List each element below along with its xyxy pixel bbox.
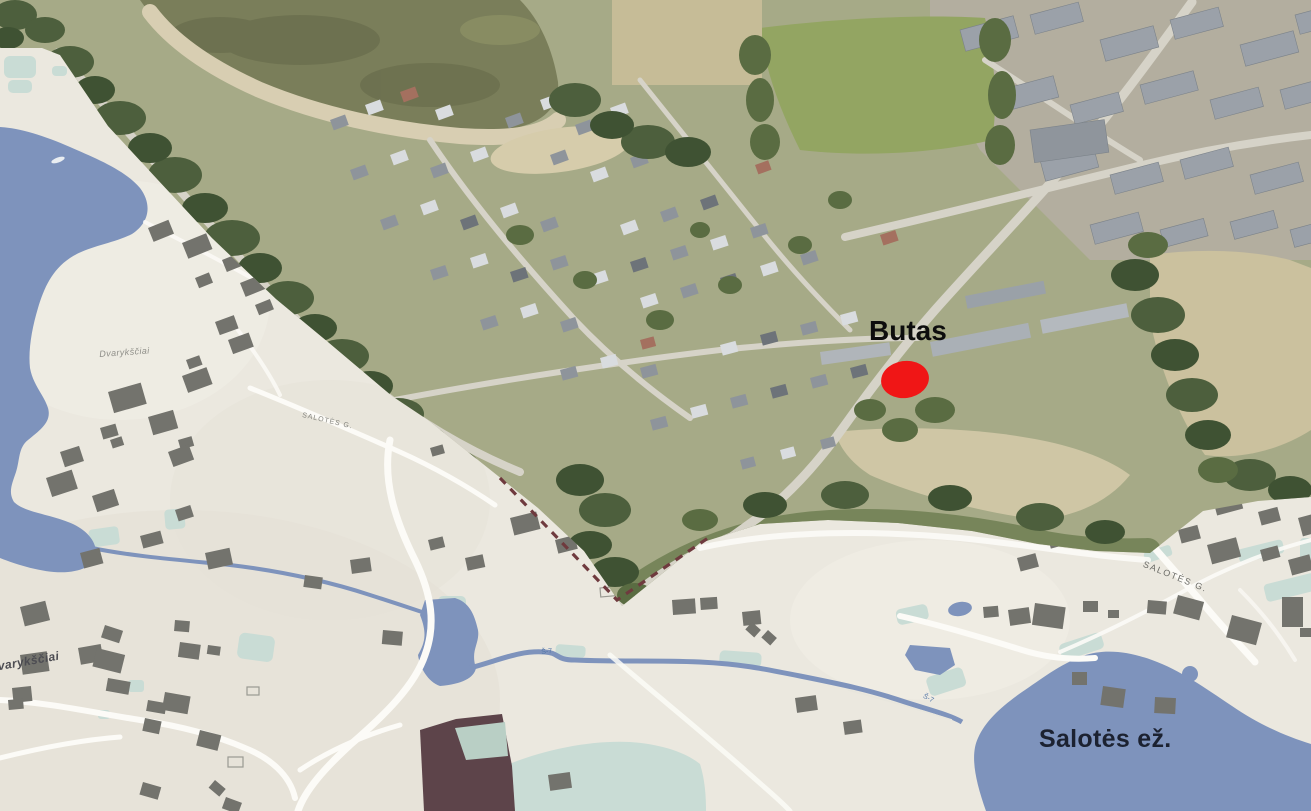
boundary-overlay [0, 0, 1311, 811]
stream-code-label: Š-7 [541, 648, 553, 656]
marker-label: Butas [869, 316, 947, 345]
lake-name-label: Salotės ež. [1039, 726, 1172, 752]
municipal-boundary-dash [500, 478, 708, 600]
map-canvas[interactable]: Butas Salotės ež. Dvarykščiai Dvarykščia… [0, 0, 1311, 811]
